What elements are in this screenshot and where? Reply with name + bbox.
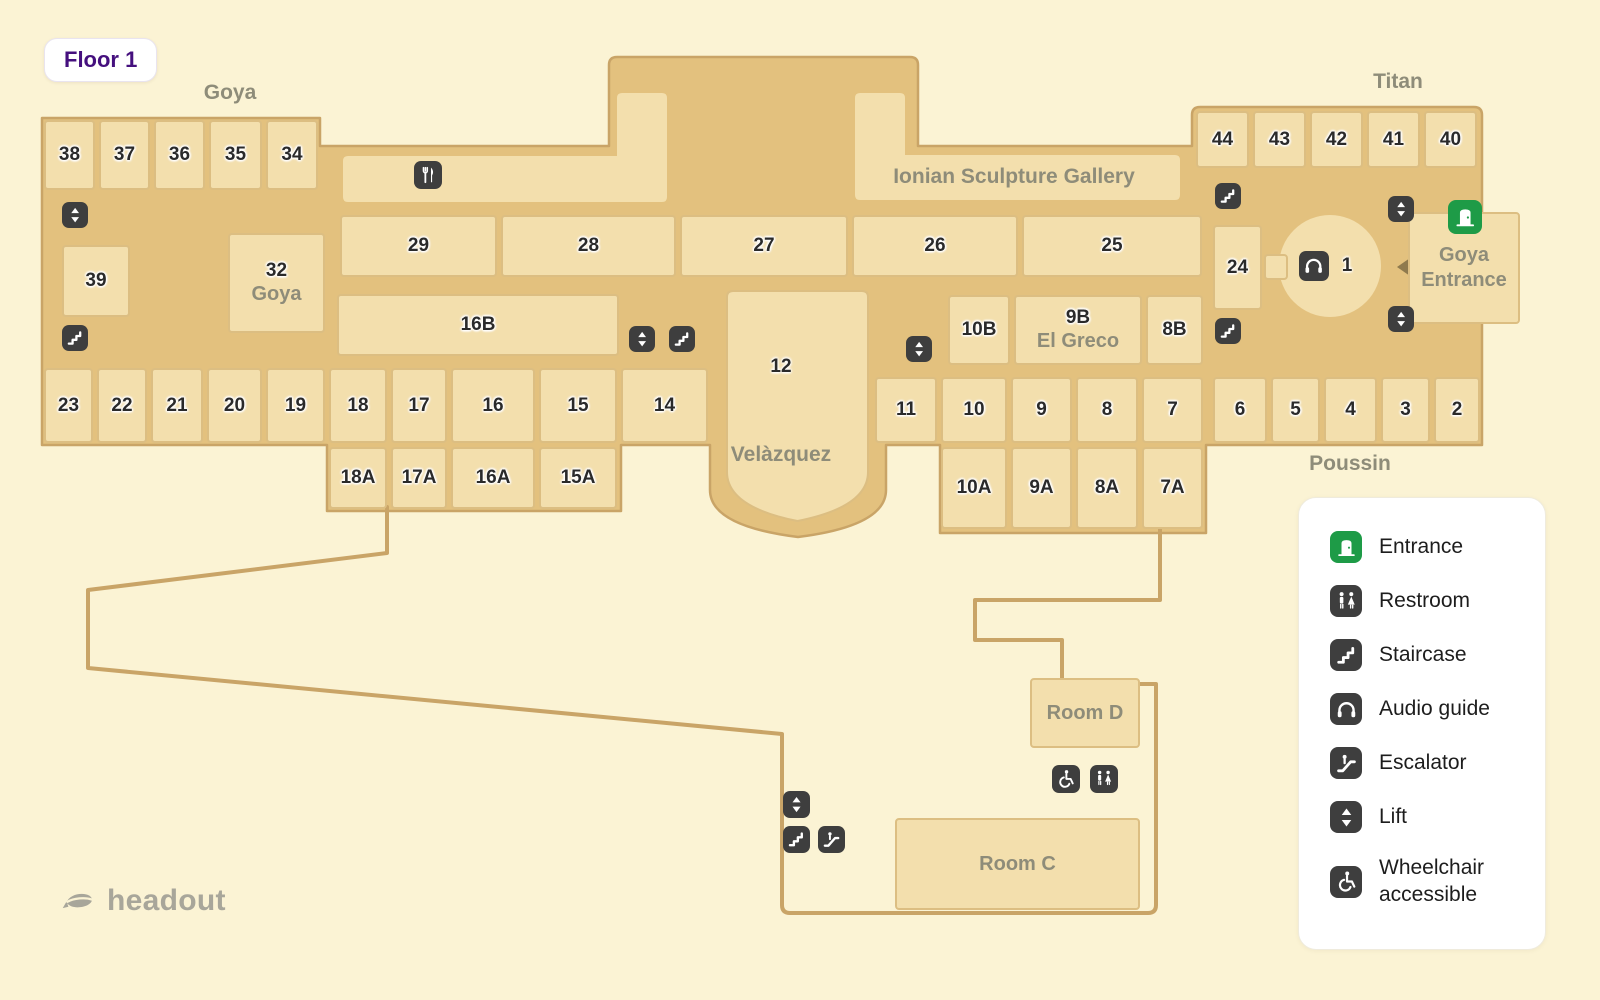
- room-label: 8: [1102, 398, 1113, 422]
- room-label: 20: [224, 394, 245, 418]
- map-label-titan: Titan: [1373, 70, 1423, 94]
- restroom-icon: [1090, 765, 1118, 793]
- room-label: 22: [111, 394, 132, 418]
- room-25: 25: [1022, 215, 1202, 277]
- room-label: 35: [225, 143, 246, 167]
- lift-icon: [62, 202, 88, 228]
- room-32: 32Goya: [228, 233, 325, 333]
- room-1-rotunda: [1279, 215, 1381, 317]
- room-corridor-stub: [1264, 254, 1288, 280]
- room-10: 10: [941, 377, 1007, 443]
- room-14: 14: [621, 368, 708, 443]
- stairs-icon: [1330, 639, 1362, 671]
- room-label: 17A: [402, 466, 437, 490]
- room-label: 16: [482, 394, 503, 418]
- room-15: 15: [539, 368, 617, 443]
- legend-item-audio-guide: Audio guide: [1330, 693, 1527, 725]
- room-39: 39: [62, 245, 130, 317]
- room-9A: 9A: [1011, 447, 1072, 529]
- room-label: 40: [1440, 128, 1461, 152]
- wheelchair-icon: [1330, 866, 1362, 898]
- room-label: 4: [1345, 398, 1356, 422]
- room-label: 38: [59, 143, 80, 167]
- room-label: 21: [166, 394, 187, 418]
- room-4: 4: [1324, 377, 1377, 443]
- room-6: 6: [1213, 377, 1267, 443]
- room-label: 43: [1269, 128, 1290, 152]
- room-label: 32: [266, 259, 287, 283]
- room-label: 37: [114, 143, 135, 167]
- room-16: 16: [451, 368, 535, 443]
- room-21: 21: [151, 368, 203, 443]
- room-label: 18: [347, 394, 368, 418]
- room-label: 17: [408, 394, 429, 418]
- room-label: 26: [924, 234, 945, 258]
- room-29: 29: [340, 215, 497, 277]
- lift-icon: [1388, 306, 1414, 332]
- room-41: 41: [1367, 111, 1420, 168]
- room-2: 2: [1434, 377, 1480, 443]
- entrance-icon: [1330, 531, 1362, 563]
- map-label-goya: Goya: [204, 81, 257, 105]
- room-label: 8A: [1095, 476, 1119, 500]
- lift-icon: [783, 791, 810, 818]
- room-label: 28: [578, 234, 599, 258]
- legend-label: Escalator: [1379, 750, 1467, 777]
- room-label: 41: [1383, 128, 1404, 152]
- room-label: 16B: [461, 313, 496, 337]
- room-26: 26: [852, 215, 1018, 277]
- legend-label: Restroom: [1379, 588, 1470, 615]
- room-20: 20: [207, 368, 262, 443]
- room-label: 44: [1212, 128, 1233, 152]
- lift-icon: [906, 336, 932, 362]
- room-label: 14: [654, 394, 675, 418]
- room-label: 10A: [957, 476, 992, 500]
- wheelchair-icon: [1052, 765, 1080, 793]
- room-34: 34: [266, 120, 318, 190]
- stairs-icon: [669, 326, 695, 352]
- room-label: 10: [963, 398, 984, 422]
- legend-item-escalator: Escalator: [1330, 747, 1527, 779]
- entrance-icon: [1448, 200, 1482, 234]
- room-label: 7: [1167, 398, 1178, 422]
- room-9B: 9BEl Greco: [1014, 295, 1142, 365]
- stairs-icon: [783, 826, 810, 853]
- room-label: 6: [1235, 398, 1246, 422]
- headout-logo-text: headout: [107, 884, 226, 918]
- map-label-1: 1: [1342, 255, 1353, 277]
- room-label: Room D: [1047, 701, 1124, 726]
- restaurant-icon: [414, 161, 442, 189]
- room-8B: 8B: [1146, 295, 1203, 365]
- room-label: 39: [85, 269, 106, 293]
- room-label: 9A: [1029, 476, 1053, 500]
- room-40: 40: [1424, 111, 1477, 168]
- room-36: 36: [154, 120, 205, 190]
- legend-item-lift: Lift: [1330, 801, 1527, 833]
- room-19: 19: [266, 368, 325, 443]
- room-label: 23: [58, 394, 79, 418]
- legend-panel: EntranceRestroomStaircaseAudio guideEsca…: [1298, 497, 1546, 950]
- room-label: 19: [285, 394, 306, 418]
- room-27: 27: [680, 215, 848, 277]
- legend-label: Entrance: [1379, 534, 1463, 561]
- room-42: 42: [1310, 111, 1363, 168]
- room-17A: 17A: [391, 447, 447, 509]
- room-sublabel: Entrance: [1421, 268, 1507, 293]
- escalator-icon: [818, 826, 845, 853]
- room-11: 11: [875, 377, 937, 443]
- room-37: 37: [99, 120, 150, 190]
- room-3: 3: [1381, 377, 1430, 443]
- room-label: 15A: [561, 466, 596, 490]
- room-18: 18: [329, 368, 387, 443]
- room-10A: 10A: [941, 447, 1007, 529]
- room-label: 11: [896, 398, 916, 422]
- room-label: 25: [1101, 234, 1122, 258]
- stairs-icon: [1215, 318, 1241, 344]
- room-label: 36: [169, 143, 190, 167]
- room-17: 17: [391, 368, 447, 443]
- map-label-12: 12: [770, 356, 791, 378]
- audio-icon: [1299, 251, 1329, 281]
- headout-logo: headout: [60, 884, 226, 918]
- room-43: 43: [1253, 111, 1306, 168]
- room-28: 28: [501, 215, 676, 277]
- room-label: 27: [753, 234, 774, 258]
- room-10B: 10B: [948, 295, 1010, 365]
- stairs-icon: [1215, 183, 1241, 209]
- room-44: 44: [1196, 111, 1249, 168]
- room-label: 9B: [1066, 306, 1090, 330]
- room-label: Goya: [1439, 243, 1489, 268]
- restroom-icon: [1330, 585, 1362, 617]
- room-room-d: Room D: [1030, 678, 1140, 748]
- room-label: 16A: [476, 466, 511, 490]
- room-sublabel: El Greco: [1037, 329, 1119, 354]
- room-7: 7: [1142, 377, 1203, 443]
- room-label: 42: [1326, 128, 1347, 152]
- room-8: 8: [1076, 377, 1138, 443]
- lift-icon: [1330, 801, 1362, 833]
- room-label: 34: [281, 143, 302, 167]
- room-label: 2: [1452, 398, 1463, 422]
- map-label-vel-zquez: Velàzquez: [731, 443, 831, 467]
- room-label: 24: [1227, 256, 1248, 280]
- legend-item-wheelchair-accessible: Wheelchair accessible: [1330, 855, 1527, 909]
- room-label: 18A: [341, 466, 376, 490]
- room-label: 15: [567, 394, 588, 418]
- map-label-poussin: Poussin: [1309, 452, 1391, 476]
- room-12-shape: [727, 291, 868, 521]
- room-16A: 16A: [451, 447, 535, 509]
- floor-selector-badge[interactable]: Floor 1: [44, 38, 157, 82]
- legend-label: Audio guide: [1379, 696, 1490, 723]
- room-9: 9: [1011, 377, 1072, 443]
- room-8A: 8A: [1076, 447, 1138, 529]
- legend-item-restroom: Restroom: [1330, 585, 1527, 617]
- legend-label: Wheelchair accessible: [1379, 855, 1527, 909]
- room-24: 24: [1213, 225, 1262, 310]
- room-18A: 18A: [329, 447, 387, 509]
- room-5: 5: [1271, 377, 1320, 443]
- room-label: 8B: [1162, 318, 1186, 342]
- room-22: 22: [97, 368, 147, 443]
- floor-map-canvas: Floor 1 38373635343932Goya292827262516B1…: [0, 0, 1600, 1000]
- room-room-c: Room C: [895, 818, 1140, 910]
- room-sublabel: Goya: [251, 282, 301, 307]
- room-38: 38: [44, 120, 95, 190]
- room-35: 35: [209, 120, 262, 190]
- room-7A: 7A: [1142, 447, 1203, 529]
- lift-icon: [629, 326, 655, 352]
- legend-item-staircase: Staircase: [1330, 639, 1527, 671]
- lift-icon: [1388, 196, 1414, 222]
- audio-icon: [1330, 693, 1362, 725]
- escalator-icon: [1330, 747, 1362, 779]
- room-23: 23: [44, 368, 93, 443]
- legend-label: Staircase: [1379, 642, 1467, 669]
- room-label: 7A: [1160, 476, 1184, 500]
- legend-item-entrance: Entrance: [1330, 531, 1527, 563]
- room-label: 9: [1036, 398, 1047, 422]
- room-15A: 15A: [539, 447, 617, 509]
- room-label: 5: [1290, 398, 1301, 422]
- room-label: Room C: [979, 852, 1056, 877]
- room-label: 29: [408, 234, 429, 258]
- room-16B: 16B: [337, 294, 619, 356]
- legend-label: Lift: [1379, 804, 1407, 831]
- stairs-icon: [62, 325, 88, 351]
- headout-blimp-icon: [60, 885, 98, 917]
- map-label-ionian-sculpture-gallery: Ionian Sculpture Gallery: [893, 165, 1135, 189]
- room-label: 10B: [962, 318, 997, 342]
- room-label: 3: [1400, 398, 1411, 422]
